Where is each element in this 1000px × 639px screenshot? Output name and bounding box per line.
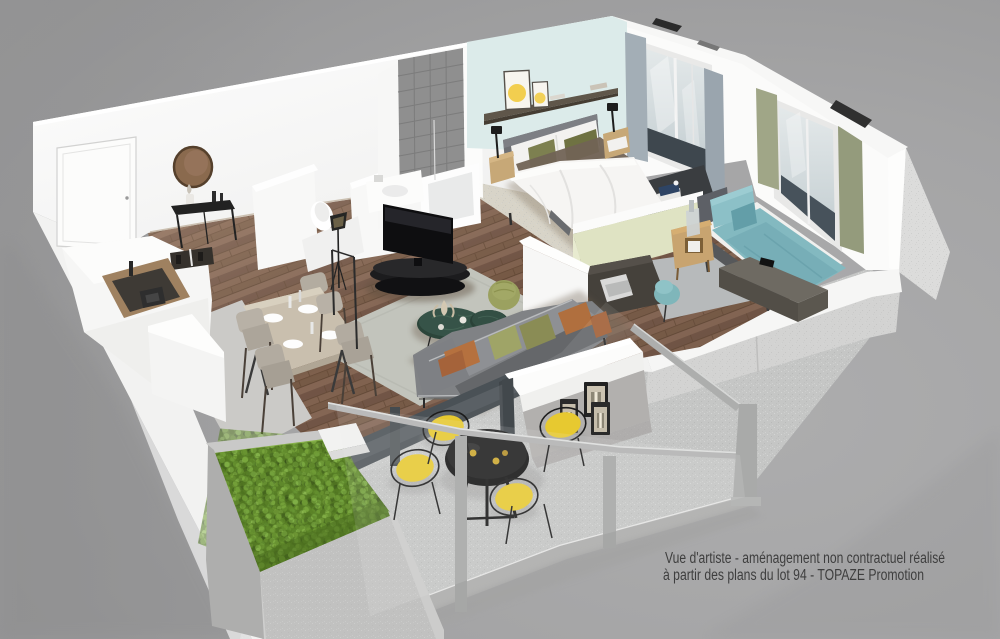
svg-text:Vue d'artiste - aménagement no: Vue d'artiste - aménagement non contract… [665, 550, 945, 567]
svg-text:à partir des plans du lot 94 -: à partir des plans du lot 94 - TOPAZE Pr… [663, 567, 924, 584]
